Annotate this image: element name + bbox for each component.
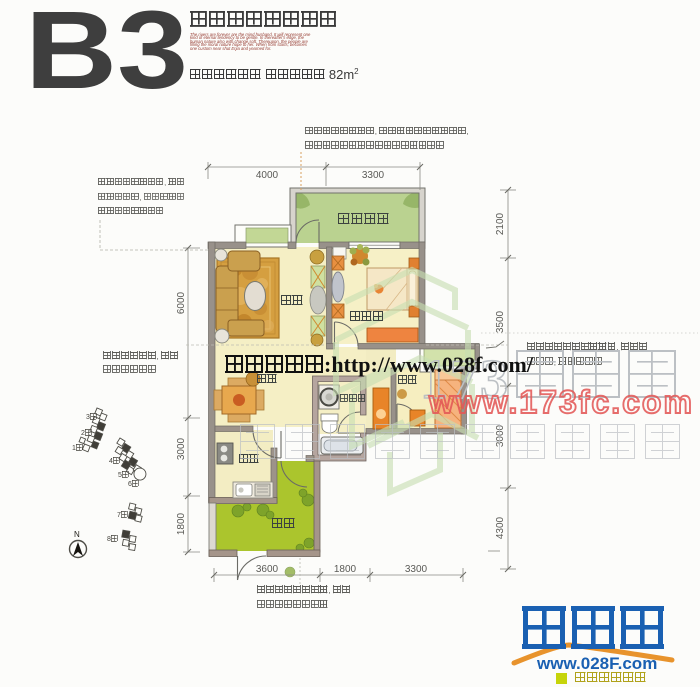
svg-text:3500: 3500 (495, 310, 506, 333)
svg-text:4300: 4300 (495, 516, 506, 539)
svg-text:4000: 4000 (256, 170, 279, 181)
svg-text:1800: 1800 (334, 564, 357, 575)
svg-text:6000: 6000 (176, 291, 187, 314)
svg-text:3300: 3300 (405, 564, 428, 575)
svg-text:3300: 3300 (362, 170, 385, 181)
svg-text:3000: 3000 (176, 437, 187, 460)
svg-text:3600: 3600 (256, 564, 279, 575)
svg-text:1800: 1800 (176, 512, 187, 535)
svg-text:2100: 2100 (495, 212, 506, 235)
